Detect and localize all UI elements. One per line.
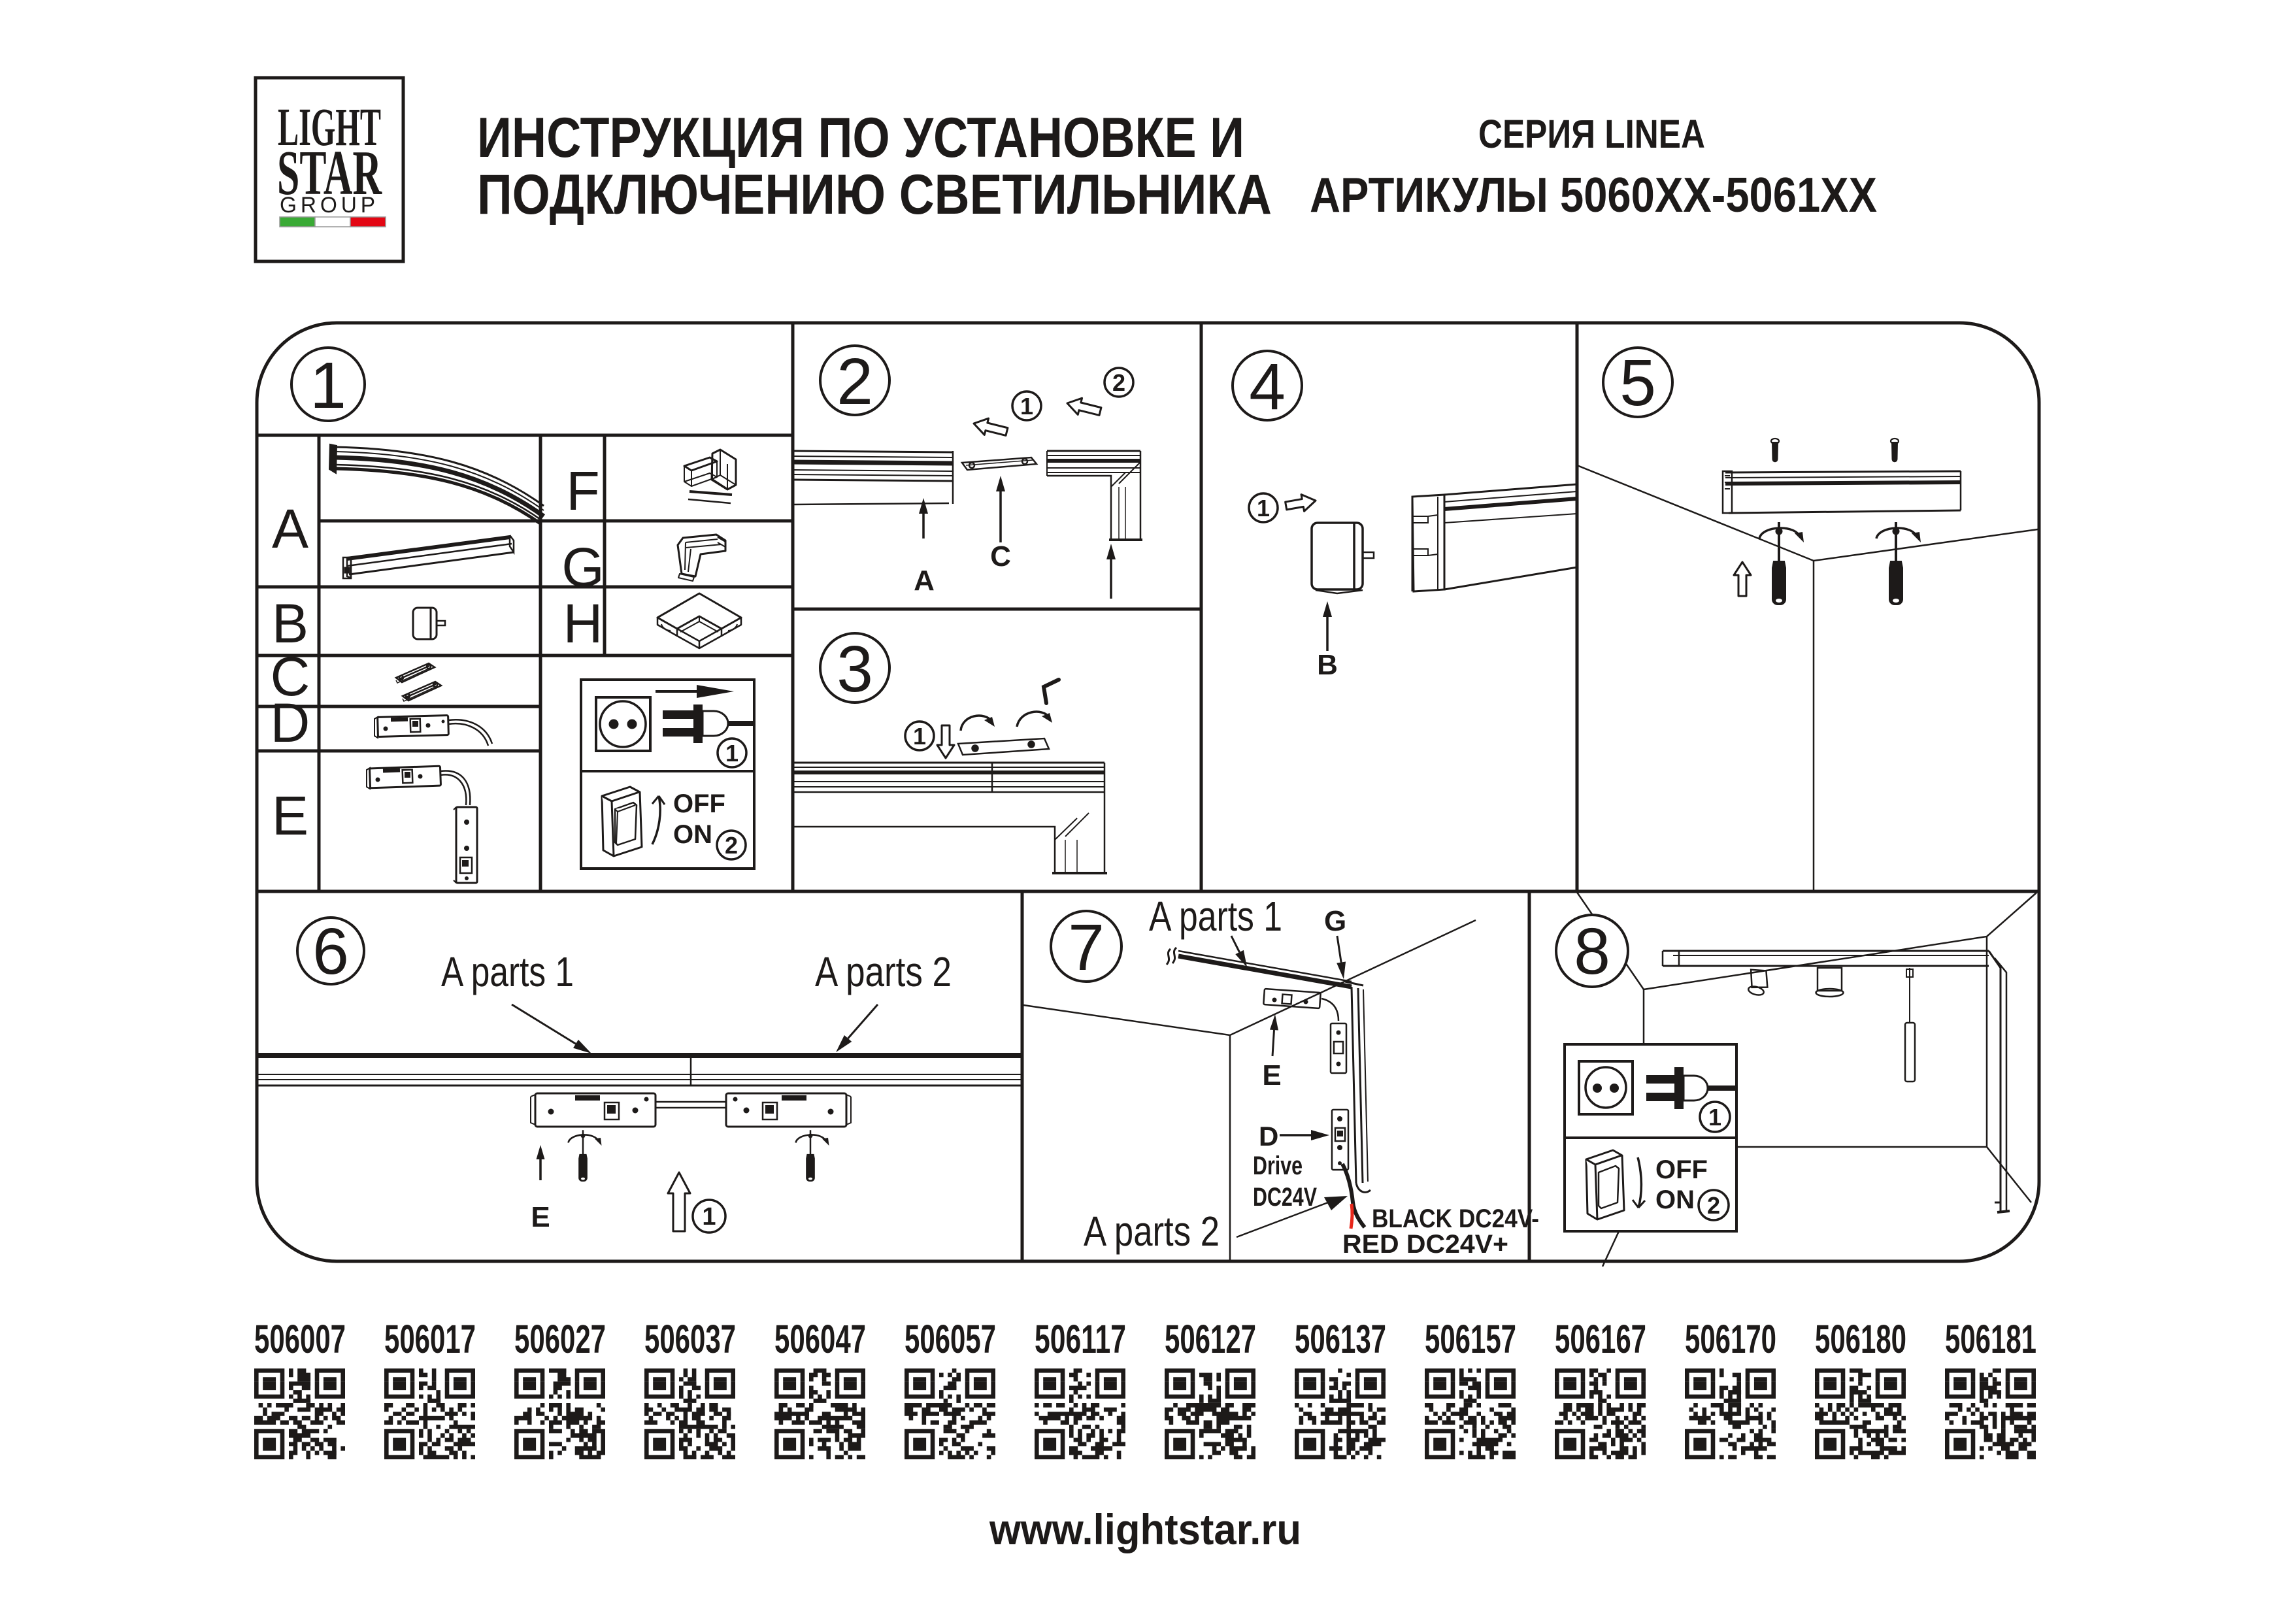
svg-text:E: E bbox=[1262, 1059, 1281, 1091]
svg-text:1: 1 bbox=[702, 1203, 716, 1231]
svg-text:1: 1 bbox=[1257, 495, 1270, 522]
svg-text:1: 1 bbox=[310, 349, 346, 422]
svg-text:OFF: OFF bbox=[1655, 1155, 1708, 1184]
svg-text:B: B bbox=[1317, 649, 1338, 681]
svg-text:1: 1 bbox=[1708, 1104, 1721, 1131]
svg-text:СЕРИЯ LINEA: СЕРИЯ LINEA bbox=[1478, 112, 1705, 156]
svg-text:ON: ON bbox=[673, 820, 712, 849]
svg-text:8: 8 bbox=[1574, 915, 1610, 988]
svg-text:DC24V: DC24V bbox=[1253, 1183, 1317, 1212]
svg-text:506017: 506017 bbox=[384, 1317, 476, 1361]
svg-text:A: A bbox=[914, 565, 935, 597]
svg-text:E: E bbox=[272, 785, 308, 846]
svg-text:A parts 2: A parts 2 bbox=[1084, 1208, 1220, 1255]
svg-text:A: A bbox=[272, 498, 308, 559]
svg-text:F: F bbox=[566, 460, 599, 522]
svg-text:D: D bbox=[1259, 1121, 1278, 1152]
svg-text:2: 2 bbox=[725, 832, 738, 859]
svg-text:ИНСТРУКЦИЯ ПО УСТАНОВКЕ И: ИНСТРУКЦИЯ ПО УСТАНОВКЕ И bbox=[477, 107, 1244, 169]
svg-text:G: G bbox=[1324, 905, 1346, 937]
svg-text:506157: 506157 bbox=[1425, 1317, 1516, 1361]
svg-text:ON: ON bbox=[1655, 1185, 1695, 1214]
svg-text:C: C bbox=[990, 540, 1011, 572]
svg-text:506007: 506007 bbox=[254, 1317, 346, 1361]
svg-text:Drive: Drive bbox=[1253, 1152, 1303, 1180]
svg-text:506127: 506127 bbox=[1165, 1317, 1256, 1361]
svg-text:OFF: OFF bbox=[673, 789, 725, 818]
svg-text:G: G bbox=[561, 537, 604, 598]
svg-text:1: 1 bbox=[913, 723, 926, 750]
svg-text:506057: 506057 bbox=[905, 1317, 996, 1361]
svg-text:506170: 506170 bbox=[1685, 1317, 1776, 1361]
svg-text:506047: 506047 bbox=[774, 1317, 866, 1361]
svg-text:D: D bbox=[271, 692, 310, 754]
svg-text:506027: 506027 bbox=[514, 1317, 606, 1361]
svg-text:3: 3 bbox=[837, 633, 873, 706]
svg-text:A parts 1: A parts 1 bbox=[1149, 893, 1282, 940]
svg-text:GROUP: GROUP bbox=[280, 193, 379, 218]
svg-text:BLACK DC24V-: BLACK DC24V- bbox=[1372, 1204, 1539, 1233]
svg-text:E: E bbox=[531, 1201, 550, 1233]
svg-text:2: 2 bbox=[1707, 1192, 1720, 1219]
svg-text:A parts 2: A parts 2 bbox=[815, 948, 952, 995]
svg-text:1: 1 bbox=[1020, 393, 1033, 420]
svg-text:A parts 1: A parts 1 bbox=[441, 948, 574, 995]
svg-text:506037: 506037 bbox=[644, 1317, 736, 1361]
svg-text:506137: 506137 bbox=[1295, 1317, 1386, 1361]
svg-text:1: 1 bbox=[725, 740, 739, 767]
svg-text:5: 5 bbox=[1619, 346, 1656, 420]
svg-text:4: 4 bbox=[1249, 350, 1286, 423]
svg-text:B: B bbox=[272, 593, 308, 654]
svg-text:H: H bbox=[563, 593, 603, 654]
svg-text:506181: 506181 bbox=[1945, 1317, 2036, 1361]
svg-text:506180: 506180 bbox=[1815, 1317, 1906, 1361]
svg-text:2: 2 bbox=[837, 345, 873, 418]
svg-text:ПОДКЛЮЧЕНИЮ СВЕТИЛЬНИКА: ПОДКЛЮЧЕНИЮ СВЕТИЛЬНИКА bbox=[477, 163, 1272, 226]
svg-text:506167: 506167 bbox=[1555, 1317, 1646, 1361]
svg-text:7: 7 bbox=[1068, 911, 1104, 984]
svg-text:АРТИКУЛЫ 5060XX-5061XX: АРТИКУЛЫ 5060XX-5061XX bbox=[1310, 167, 1877, 222]
svg-text:www.lightstar.ru: www.lightstar.ru bbox=[989, 1505, 1301, 1553]
svg-text:506117: 506117 bbox=[1035, 1317, 1126, 1361]
svg-text:RED DC24V+: RED DC24V+ bbox=[1342, 1230, 1508, 1259]
svg-text:2: 2 bbox=[1112, 369, 1125, 396]
svg-text:6: 6 bbox=[312, 915, 349, 988]
